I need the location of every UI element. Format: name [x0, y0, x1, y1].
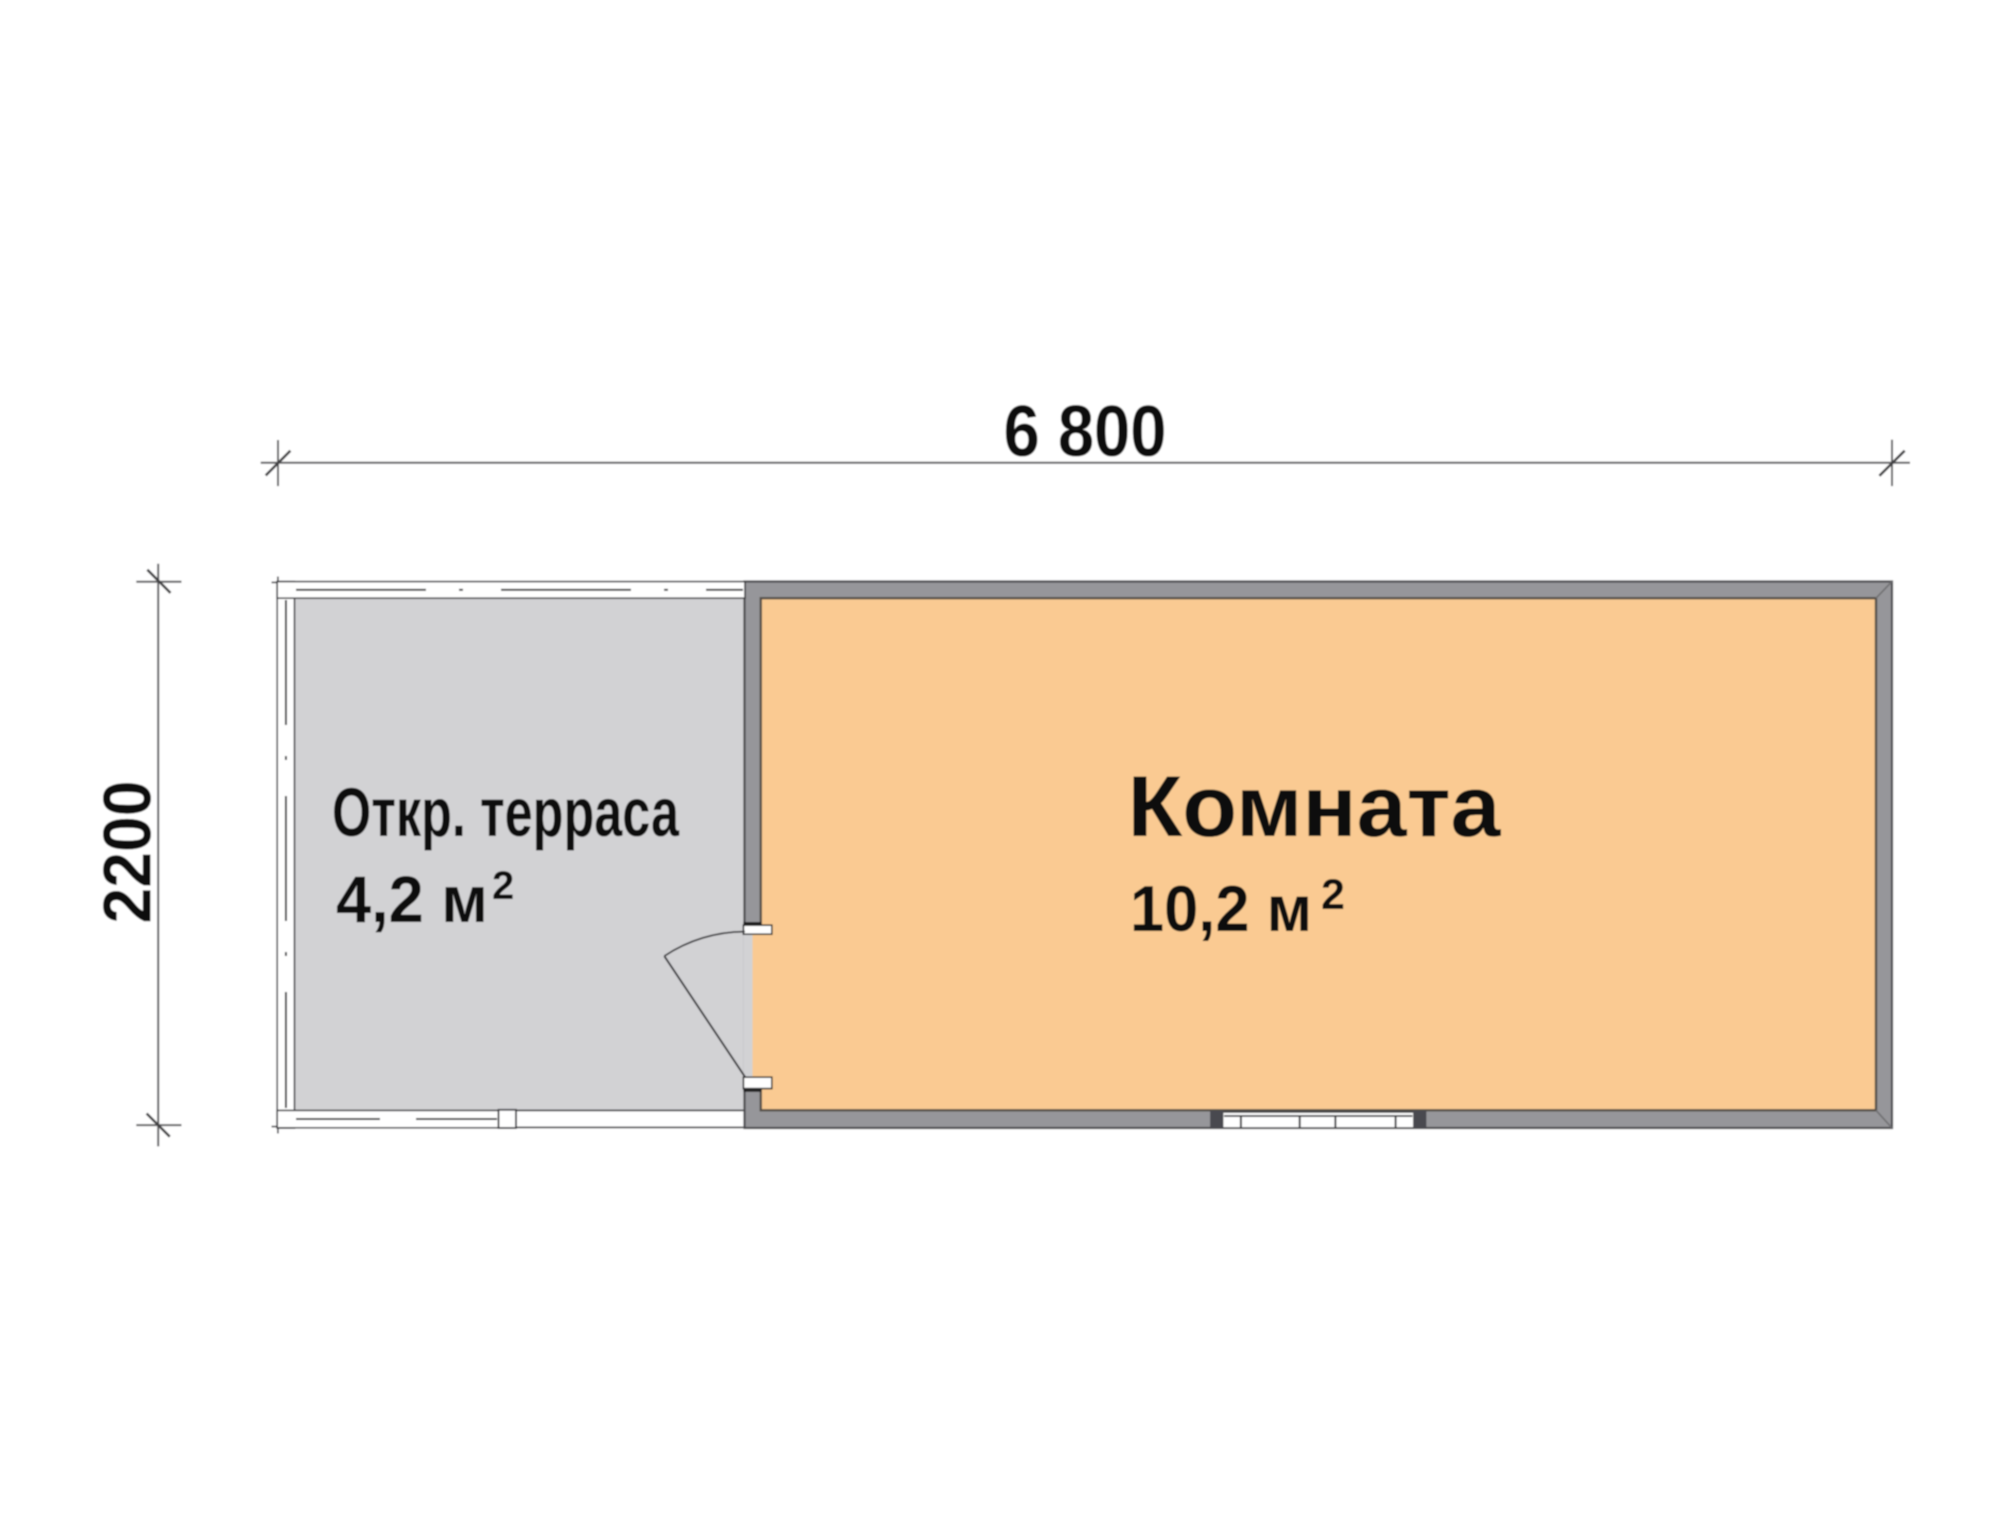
svg-text:4,2 м: 4,2 м [336, 862, 488, 936]
svg-text:6 800: 6 800 [1004, 392, 1167, 472]
svg-text:2: 2 [492, 864, 514, 908]
svg-text:Откр. терраса: Откр. терраса [332, 774, 679, 851]
svg-text:Комната: Комната [1128, 759, 1502, 855]
svg-text:10,2 м: 10,2 м [1130, 873, 1312, 945]
svg-text:2: 2 [1321, 871, 1345, 919]
svg-text:2200: 2200 [91, 781, 166, 924]
